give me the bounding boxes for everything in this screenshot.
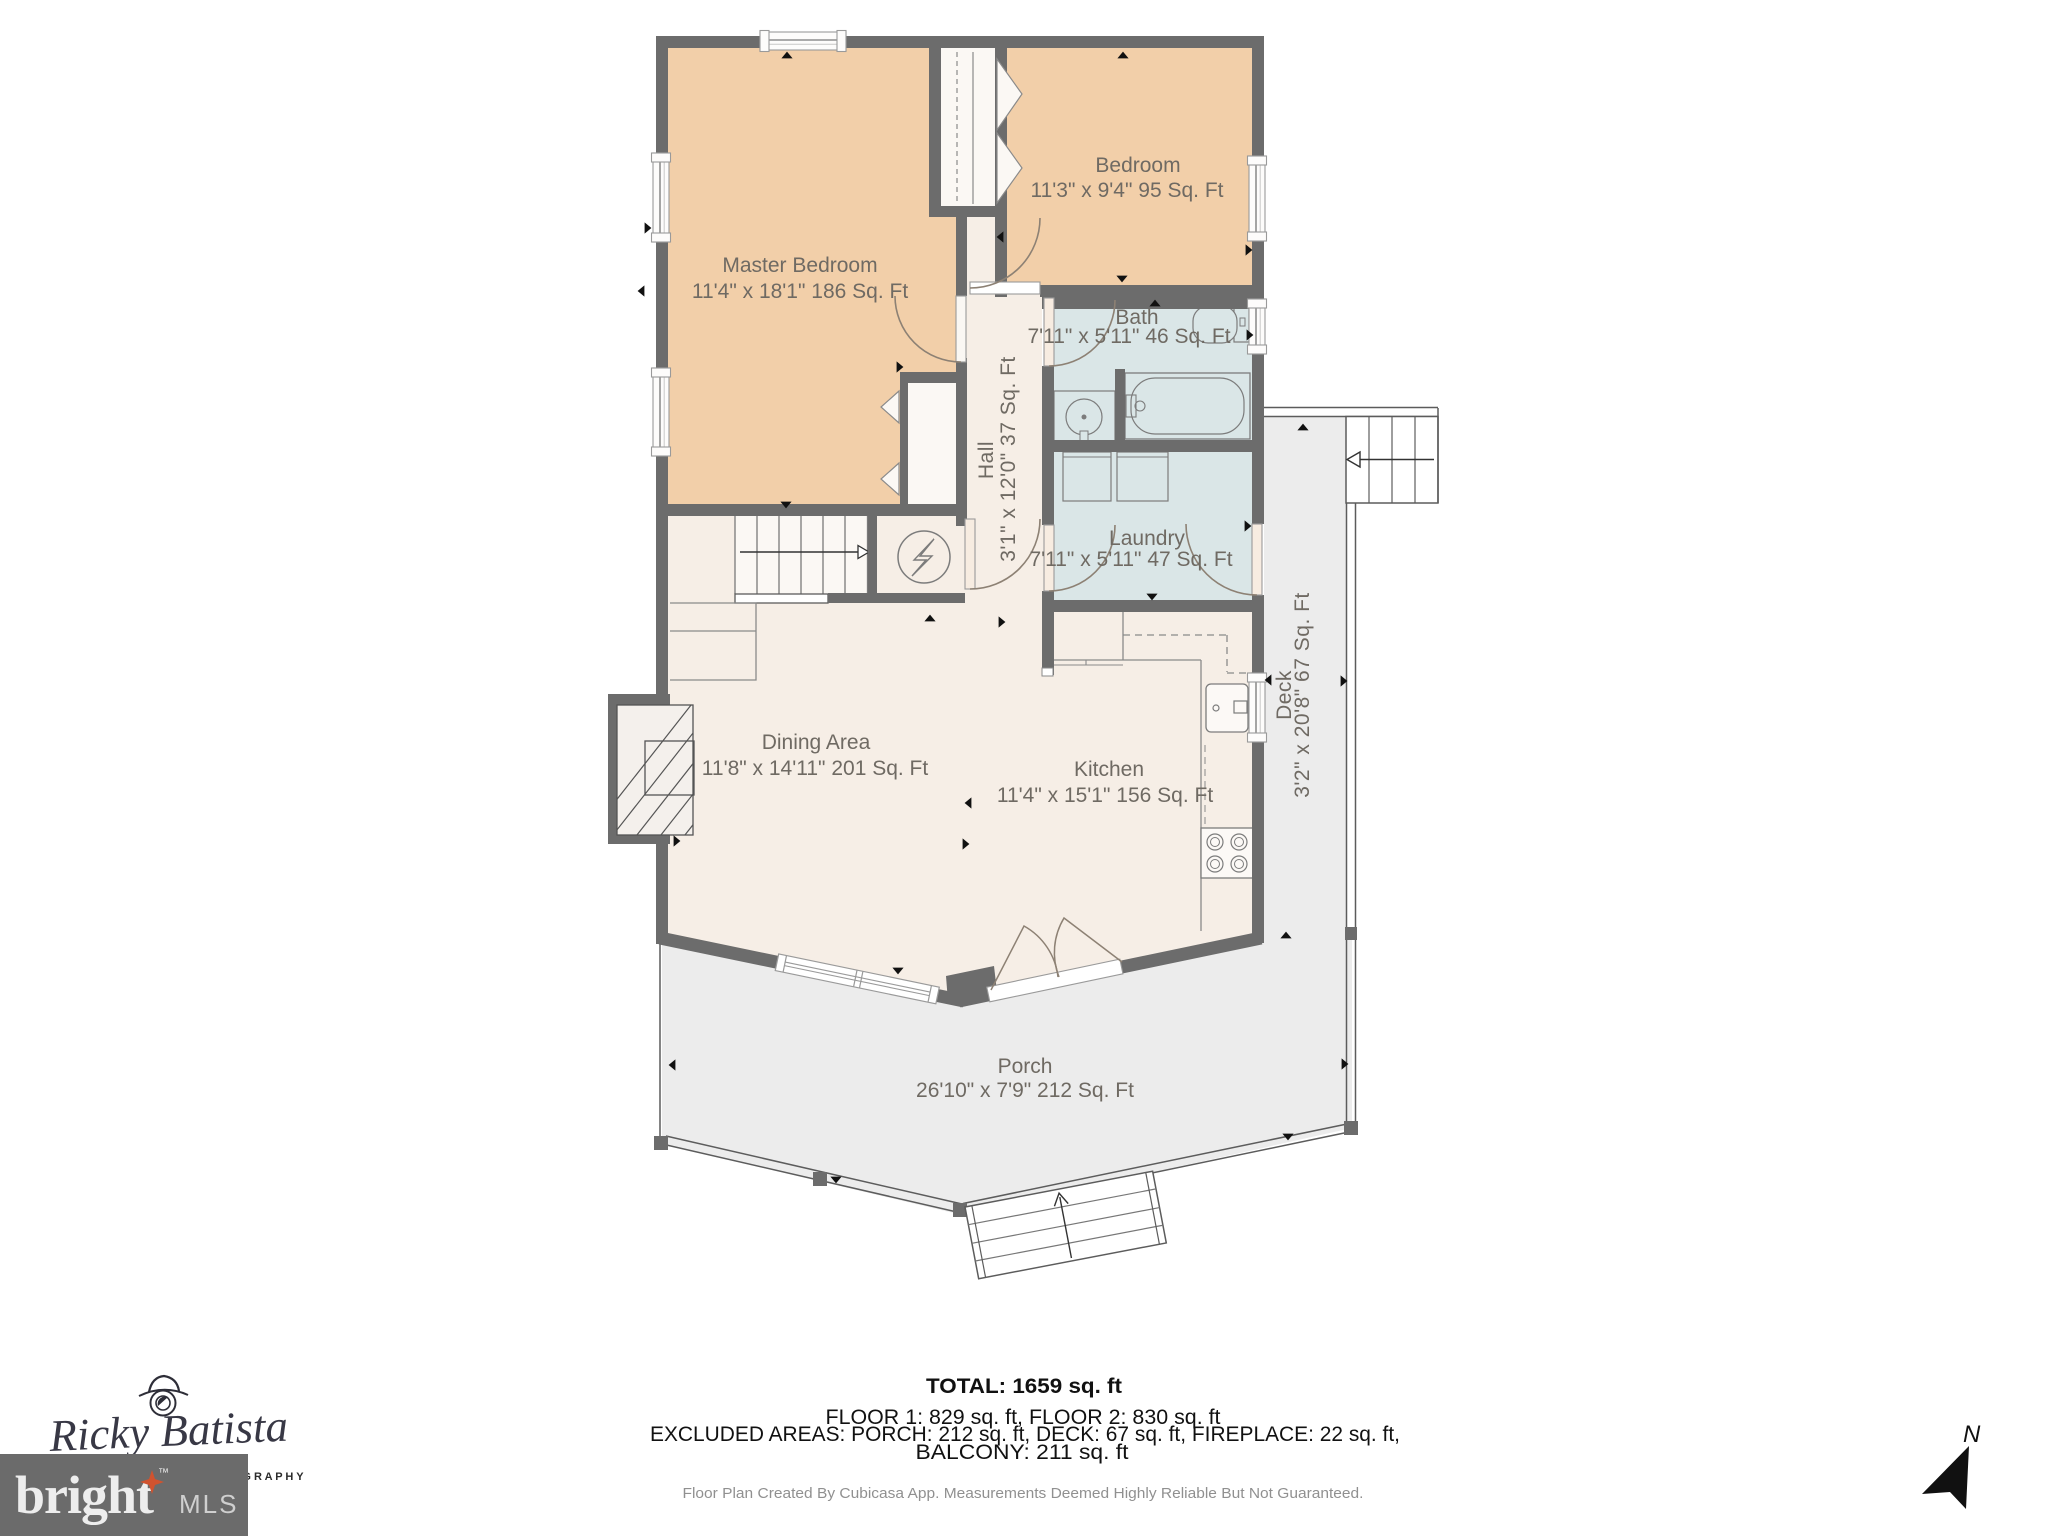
svg-text:Master Bedroom: Master Bedroom [722,254,877,277]
svg-text:N: N [1963,1421,1981,1448]
svg-text:Bedroom: Bedroom [1095,154,1180,177]
svg-text:Dining Area: Dining Area [762,731,871,754]
svg-text:11'4" x 18'1" 186 Sq. Ft: 11'4" x 18'1" 186 Sq. Ft [692,280,909,303]
svg-text:26'10" x 7'9" 212 Sq. Ft: 26'10" x 7'9" 212 Sq. Ft [916,1079,1134,1102]
svg-text:BALCONY: 211 sq. ft: BALCONY: 211 sq. ft [916,1441,1129,1464]
svg-text:3'2" x 20'8" 67 Sq. Ft: 3'2" x 20'8" 67 Sq. Ft [1291,592,1314,798]
svg-text:Porch: Porch [998,1055,1053,1078]
svg-text:11'8" x 14'11" 201 Sq. Ft: 11'8" x 14'11" 201 Sq. Ft [702,757,929,780]
svg-text:11'3" x 9'4" 95 Sq. Ft: 11'3" x 9'4" 95 Sq. Ft [1031,179,1224,202]
svg-text:MLS: MLS [179,1489,238,1519]
svg-text:Hall: Hall [975,441,998,479]
svg-text:7'11" x 5'11" 46 Sq. Ft: 7'11" x 5'11" 46 Sq. Ft [1027,325,1230,348]
svg-text:3'1" x 12'0" 37 Sq. Ft: 3'1" x 12'0" 37 Sq. Ft [997,356,1020,562]
svg-text:Laundry: Laundry [1109,527,1185,550]
svg-text:Kitchen: Kitchen [1074,758,1144,781]
svg-text:bright: bright [15,1465,154,1525]
svg-text:TOTAL: 1659 sq. ft: TOTAL: 1659 sq. ft [926,1375,1122,1398]
svg-text:G R A P H Y: G R A P H Y [242,1471,304,1483]
svg-text:Ricky Batista: Ricky Batista [47,1401,289,1461]
svg-text:Floor Plan Created By Cubicasa: Floor Plan Created By Cubicasa App. Meas… [683,1485,1364,1502]
svg-text:7'11" x 5'11" 47 Sq. Ft: 7'11" x 5'11" 47 Sq. Ft [1029,548,1232,571]
svg-text:™: ™ [158,1467,169,1479]
svg-text:11'4" x 15'1" 156 Sq. Ft: 11'4" x 15'1" 156 Sq. Ft [997,784,1214,807]
